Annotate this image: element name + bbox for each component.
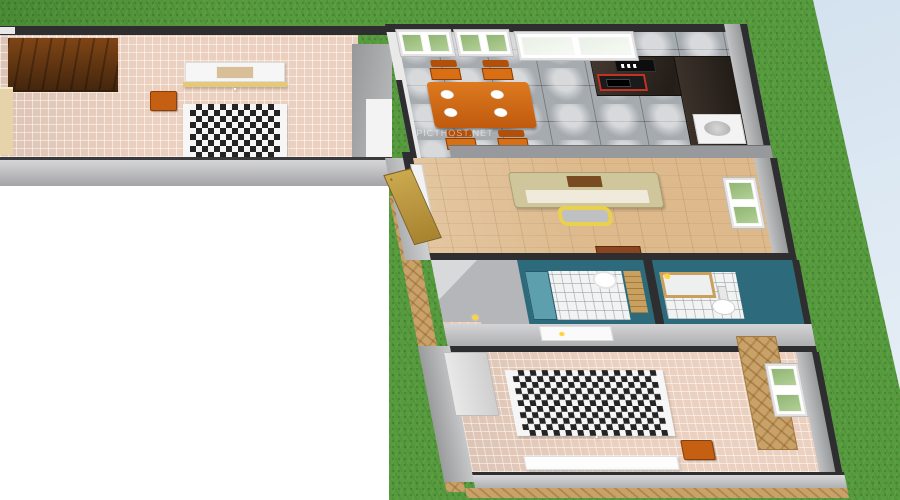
coffee-table[interactable] <box>556 206 614 226</box>
wall-outer-face <box>472 472 847 488</box>
checkered-blanket <box>190 104 280 157</box>
dining-table[interactable] <box>426 82 537 128</box>
wall-top <box>0 26 392 35</box>
checkered-blanket <box>511 370 668 436</box>
room-bathroom-2 <box>652 260 804 324</box>
shelf-knob <box>559 332 565 336</box>
nightstand[interactable] <box>680 440 716 460</box>
room-bedroom-1 <box>0 26 392 186</box>
dark-parquet-panel[interactable] <box>8 38 118 92</box>
floor-plan-render: PICTHOST.NET <box>0 0 900 500</box>
wall-kitchen-living <box>449 145 774 158</box>
door-opening[interactable] <box>0 27 15 34</box>
kitchen-window-1[interactable] <box>396 30 455 56</box>
double-bed[interactable] <box>183 62 287 157</box>
double-bed[interactable] <box>504 370 682 472</box>
bedroom1-floor <box>0 35 358 157</box>
side-cabinet[interactable] <box>0 87 13 155</box>
wall-living-bath <box>429 253 796 260</box>
nightstand[interactable] <box>150 91 177 111</box>
dining-chair[interactable] <box>480 60 514 80</box>
bed-gold-bar <box>183 82 287 87</box>
watermark-text: PICTHOST.NET <box>415 128 494 138</box>
plate <box>440 90 455 99</box>
bed-headboard <box>185 62 285 82</box>
room-kitchen-dining: PICTHOST.NET <box>385 24 773 158</box>
ceiling-light <box>472 315 479 320</box>
microwave[interactable] <box>614 59 657 72</box>
house-bottom-wall <box>472 472 849 498</box>
kitchen-window-3[interactable] <box>515 32 638 60</box>
dining-chair[interactable] <box>428 60 462 80</box>
terrace-strip <box>465 488 849 498</box>
hallway-corner <box>431 260 531 324</box>
kitchen-window-2[interactable] <box>454 30 513 56</box>
bed-blanket <box>183 104 287 157</box>
sofa-back-cushions <box>521 176 647 188</box>
plate <box>493 108 508 117</box>
bed-footboard <box>523 456 680 470</box>
sofa[interactable] <box>508 172 665 208</box>
room-bathroom-1 <box>517 260 655 324</box>
plate <box>443 108 458 117</box>
room-bedroom-2 <box>449 352 842 472</box>
bed-pillows <box>527 436 668 454</box>
ceiling-light <box>664 274 671 279</box>
sofa-seat <box>524 189 651 204</box>
kitchen-sink[interactable] <box>692 114 746 144</box>
bed-blanket <box>504 370 675 436</box>
stove-cooktop[interactable] <box>597 74 648 91</box>
room-living <box>411 158 797 260</box>
bed-pillows <box>191 88 279 103</box>
wall-shelf[interactable] <box>539 326 614 341</box>
plate <box>490 90 505 99</box>
wall-outer-face <box>0 157 392 186</box>
wall-inner-white <box>366 99 392 166</box>
